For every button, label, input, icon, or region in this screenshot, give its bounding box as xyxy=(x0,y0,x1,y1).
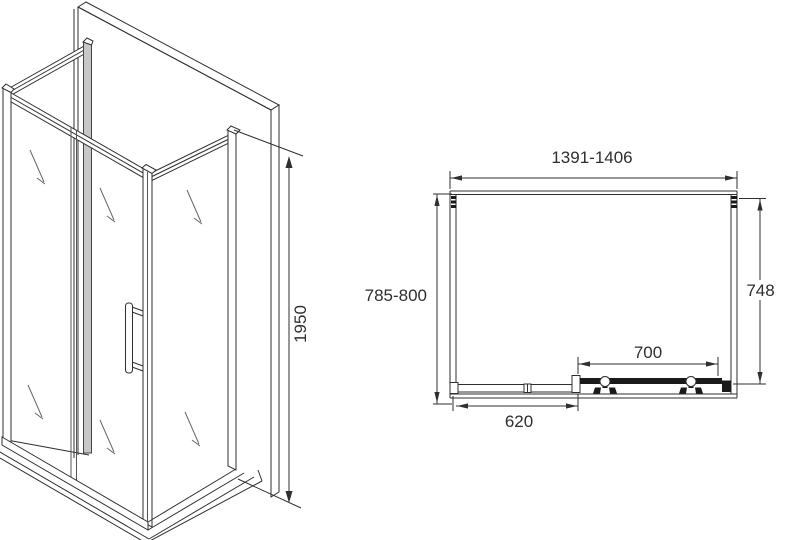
dimension-fixed-panel: 620 xyxy=(453,394,578,431)
glass-reflection-marks xyxy=(185,190,202,446)
plan-view: 1391-1406 785-800 748 xyxy=(365,148,777,431)
dimension-overall-width: 1391-1406 xyxy=(450,148,737,189)
right-back-post xyxy=(228,130,236,470)
sliding-door xyxy=(572,376,731,394)
wall-profile-right xyxy=(732,196,738,208)
wall-profile-left xyxy=(451,196,457,208)
door-end-block xyxy=(722,381,731,393)
door-width-label: 700 xyxy=(634,343,662,362)
shower-tray xyxy=(0,437,262,540)
technical-drawing-svg: 1950 xyxy=(0,0,798,540)
front-left-post xyxy=(3,88,11,444)
dimension-depth-right: 748 xyxy=(733,199,777,385)
isometric-view: 1950 xyxy=(0,2,310,540)
dimension-depth-left: 785-800 xyxy=(365,194,452,404)
right-side-panel xyxy=(151,126,240,470)
frame-outline xyxy=(450,191,737,398)
handle-bar xyxy=(126,303,133,373)
door-handle xyxy=(126,303,144,373)
overall-width-label: 1391-1406 xyxy=(551,148,632,167)
left-back-post xyxy=(84,42,92,453)
depth-right-label: 748 xyxy=(746,281,774,300)
back-wall-panel xyxy=(74,2,279,497)
height-dimension-label: 1950 xyxy=(291,305,310,343)
fixed-panel-width-label: 620 xyxy=(505,412,533,431)
front-sliding-door-face xyxy=(2,84,156,527)
door-end-cap xyxy=(572,376,580,393)
fixed-panel xyxy=(450,383,580,394)
dimension-door-width: 700 xyxy=(578,343,718,376)
drawing-canvas: 1950 xyxy=(0,0,798,540)
depth-left-label: 785-800 xyxy=(365,286,427,305)
